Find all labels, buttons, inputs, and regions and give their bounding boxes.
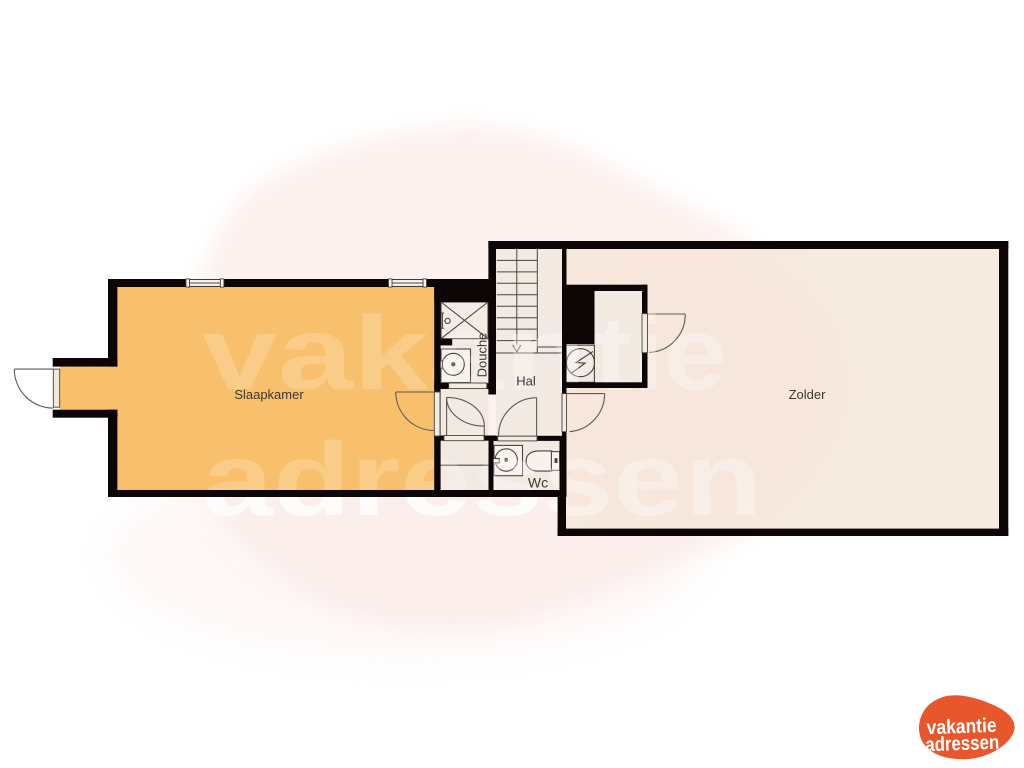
svg-text:Hal: Hal [516, 374, 536, 389]
svg-text:adressen: adressen [925, 732, 1000, 757]
svg-text:Douche: Douche [475, 333, 490, 378]
svg-text:Zolder: Zolder [789, 387, 827, 402]
svg-text:Wc: Wc [528, 475, 548, 491]
svg-text:tie: tie [594, 296, 727, 412]
svg-text:Slaapkamer: Slaapkamer [234, 387, 304, 402]
